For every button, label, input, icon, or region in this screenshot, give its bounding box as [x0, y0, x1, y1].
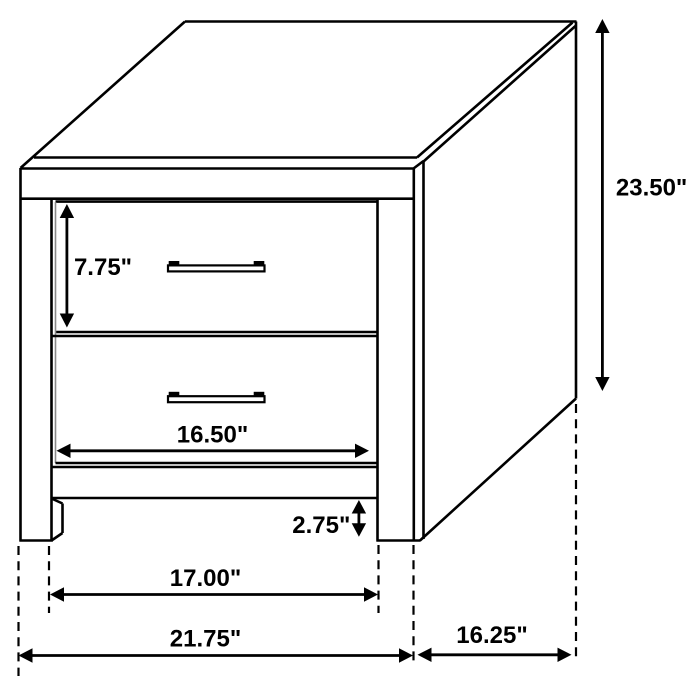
svg-text:2.75": 2.75" — [292, 512, 350, 539]
svg-text:21.75": 21.75" — [170, 626, 241, 653]
svg-text:17.00": 17.00" — [170, 565, 241, 592]
svg-text:7.75": 7.75" — [74, 254, 132, 281]
svg-text:16.25": 16.25" — [456, 622, 527, 649]
svg-text:16.50": 16.50" — [177, 422, 248, 449]
svg-text:23.50": 23.50" — [616, 175, 687, 202]
